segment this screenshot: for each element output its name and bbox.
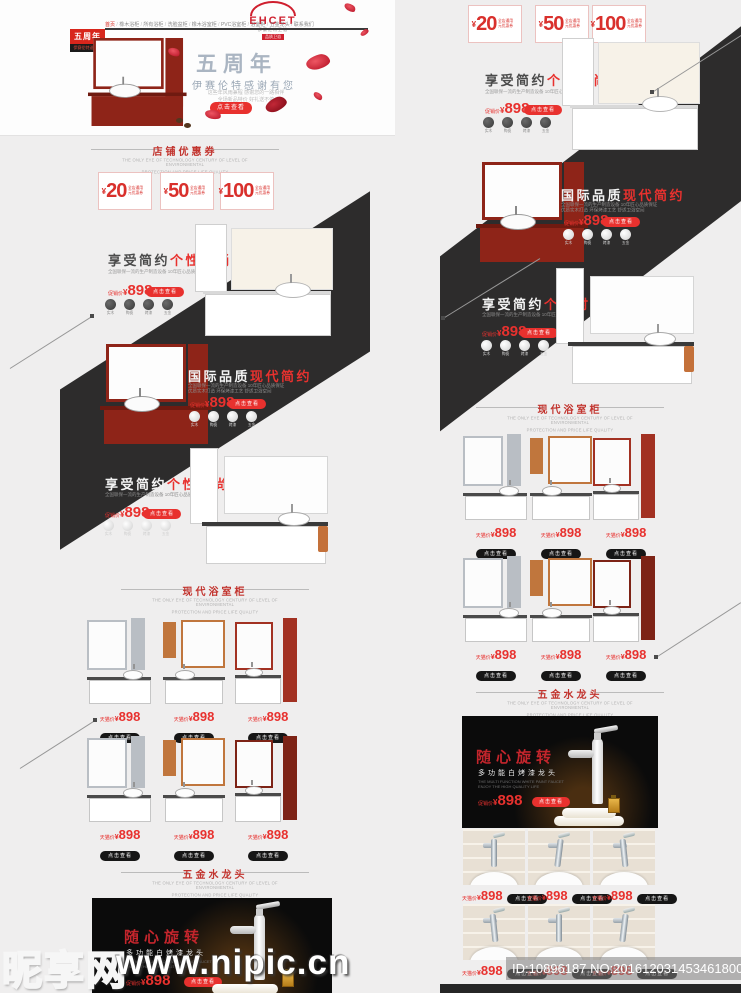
wood-icon [103,520,114,531]
promo2-desc: 全国联保一流的生产制造设备 10年匠心品质保证优质实木打造 环保烤漆工艺 舒适卫… [188,384,284,395]
hardware-icon [160,520,171,531]
wood-icon [481,340,492,351]
promo2-view-button[interactable]: 点击查看 [602,217,640,227]
cabinet-product[interactable]: 天猫价¥898 点击查看 [527,556,595,682]
faucet-photo [593,904,655,960]
cabinet-product[interactable]: 天猫价¥898 点击查看 [234,736,302,862]
ceramic-icon [122,520,133,531]
paint-icon [143,299,154,310]
faucet-banner-price: 促销价¥898 [478,792,523,810]
promo1-desc: 全国联保一流的生产制造设备 10年匠心品质保证 [108,268,204,274]
cabinet-section-header: 现代浴室柜 THE ONLY EYE OF TECHNOLOGY CENTURY… [470,401,670,434]
faucet-section-header: 五金水龙头 THE ONLY EYE OF TECHNOLOGY CENTURY… [470,686,670,719]
cabinet-product[interactable]: 天猫价¥898 点击查看 [160,736,228,862]
coupon-50[interactable]: ¥50 全店通用元优惠券 [160,172,214,210]
logo-tag: 品质卫浴 [262,34,284,40]
wood-icon [189,411,200,422]
petal-decor [343,1,357,13]
paint-icon [227,411,238,422]
paint-icon [141,520,152,531]
promo3-features: 实木 陶瓷 烤漆 五金 [102,520,172,538]
cabinet-section-title: 现代浴室柜 [115,583,315,598]
faucet-photo [528,829,590,885]
wood-icon [483,117,494,128]
promo1-product-image[interactable] [562,36,702,152]
promo1-price: 促销价¥898 [485,100,530,118]
faucet-banner-button[interactable]: 点击查看 [532,797,570,807]
promo2-title: 国际品质现代简约 [561,185,685,204]
cabinet-section-header: 现代浴室柜 THE ONLY EYE OF TECHNOLOGY CENTURY… [115,583,315,616]
cabinet-product[interactable]: 天猫价¥898 点击查看 [86,736,154,862]
faucet-product[interactable]: 天猫价¥898 点击查看 [462,829,526,905]
promo1-view-button[interactable]: 点击查看 [146,287,184,297]
petal-decor [305,52,332,72]
paint-icon [521,117,532,128]
hardware-icon [540,117,551,128]
faucet-banner[interactable]: 随心旋转 多功能白烤漆龙头 THE MULTI FUNCTION WHITE P… [462,716,658,828]
faucet-photo [593,829,655,885]
hardware-icon [620,229,631,240]
promo3-product-image[interactable] [190,448,330,564]
faucet-photo [463,829,525,885]
promo3-features: 实木 陶瓷 烤漆 五金 [480,340,550,358]
main-nav: 首页橡木浴柜所有浴柜洗脸盆柜橡木浴室柜PVC浴室柜浴室柜五金龙头联系我们 [105,21,368,28]
promo2-view-button[interactable]: 点击查看 [228,399,266,409]
ceramic-icon [582,229,593,240]
nav-underline [105,28,368,30]
wood-icon [105,299,116,310]
promo1-features: 实木 陶瓷 烤漆 五金 [482,117,552,135]
paint-icon [601,229,612,240]
cabinet-product[interactable]: 天猫价¥898 点击查看 [234,618,302,744]
view-button[interactable]: 点击查看 [541,671,581,681]
faucet-section-header: 五金水龙头 THE ONLY EYE OF TECHNOLOGY CENTURY… [115,866,315,899]
cabinet-product[interactable]: 天猫价¥898 点击查看 [462,434,530,560]
view-button[interactable]: 点击查看 [637,894,677,904]
decor-dot [441,316,445,320]
cabinet-product[interactable]: 天猫价¥898 点击查看 [462,556,530,682]
petal-decor [312,90,324,101]
view-button[interactable]: 点击查看 [100,851,140,861]
view-button[interactable]: 点击查看 [606,671,646,681]
watermark-id: ID:10896187 NO:20161203145346180000 [506,957,741,980]
cabinet-section-title: 现代浴室柜 [470,401,670,416]
decor-dot [654,655,658,659]
promo1-features: 实木 陶瓷 烤漆 五金 [104,299,174,317]
ceramic-icon [500,340,511,351]
promo3-desc: 全国联保一流的生产制造设备 10年匠心品质保证 [105,492,201,497]
promo1-product-image[interactable] [195,222,335,338]
perfume-decor [608,798,620,813]
view-button[interactable]: 点击查看 [174,851,214,861]
promo3-view-button[interactable]: 点击查看 [520,328,558,338]
faucet-photo [528,904,590,960]
logo-arc-icon [250,1,296,16]
watermark-site-url: www.nipic.cn [116,943,350,983]
watermark-site-name: 昵享网 [2,938,128,993]
coupon-20[interactable]: ¥20 全店通用元优惠券 [468,5,522,43]
decor-dot [650,90,654,94]
coupon-20[interactable]: ¥20 全店通用元优惠券 [98,172,152,210]
promo1-view-button[interactable]: 点击查看 [524,105,562,115]
towel-decor [212,984,278,993]
coupon-section-title: 店铺优惠券 [85,143,285,158]
faucet-photo [463,904,525,960]
promo2-title: 国际品质现代简约 [188,366,312,385]
faucet-product[interactable]: 天猫价¥898 点击查看 [592,829,656,905]
faucet-product[interactable]: 天猫价¥898 点击查看 [527,829,591,905]
coffee-bean-decor [184,123,191,128]
promo2-features: 实木 陶瓷 烤漆 五金 [188,411,258,429]
ceramic-icon [124,299,135,310]
cabinet-product[interactable]: 天猫价¥898 点击查看 [592,556,660,682]
banner-title: 五周年 [196,48,277,78]
faucet-section-title: 五金水龙头 [470,686,670,701]
view-button[interactable]: 点击查看 [248,851,288,861]
hardware-icon [538,340,549,351]
cabinet-product[interactable]: 天猫价¥898 点击查看 [86,618,154,744]
hardware-icon [246,411,257,422]
faucet-section-title: 五金水龙头 [115,866,315,881]
decor-dot [90,314,94,318]
ceramic-icon [208,411,219,422]
paint-icon [519,340,530,351]
coupon-100[interactable]: ¥100 全店通用元优惠券 [220,172,274,210]
view-button[interactable]: 点击查看 [476,671,516,681]
coffee-bean-decor [176,118,183,123]
left-column: EHCET 伊赛伦特卫浴 品质卫浴 首页橡木浴柜所有浴柜洗脸盆柜橡木浴室柜PVC… [60,0,370,993]
cabinet-product[interactable]: 天猫价¥898 点击查看 [527,434,595,560]
decor-dot [93,718,97,722]
cabinet-product[interactable]: 天猫价¥898 点击查看 [160,618,228,744]
hardware-icon [162,299,173,310]
right-column: ¥20 全店通用元优惠券 ¥50 全店通用元优惠券 ¥100 全店通用元优惠券 … [440,0,741,993]
promo2-features: 实木 陶瓷 烤漆 五金 [562,229,632,247]
promo-page: EHCET 伊赛伦特卫浴 品质卫浴 首页橡木浴柜所有浴柜洗脸盆柜橡木浴室柜PVC… [0,0,741,993]
promo3-view-button[interactable]: 点击查看 [143,509,181,519]
cabinet-product[interactable]: 天猫价¥898 点击查看 [592,434,660,560]
next-section-strip [440,984,741,993]
ceramic-icon [502,117,513,128]
promo3-product-image[interactable] [556,268,696,384]
wood-icon [563,229,574,240]
